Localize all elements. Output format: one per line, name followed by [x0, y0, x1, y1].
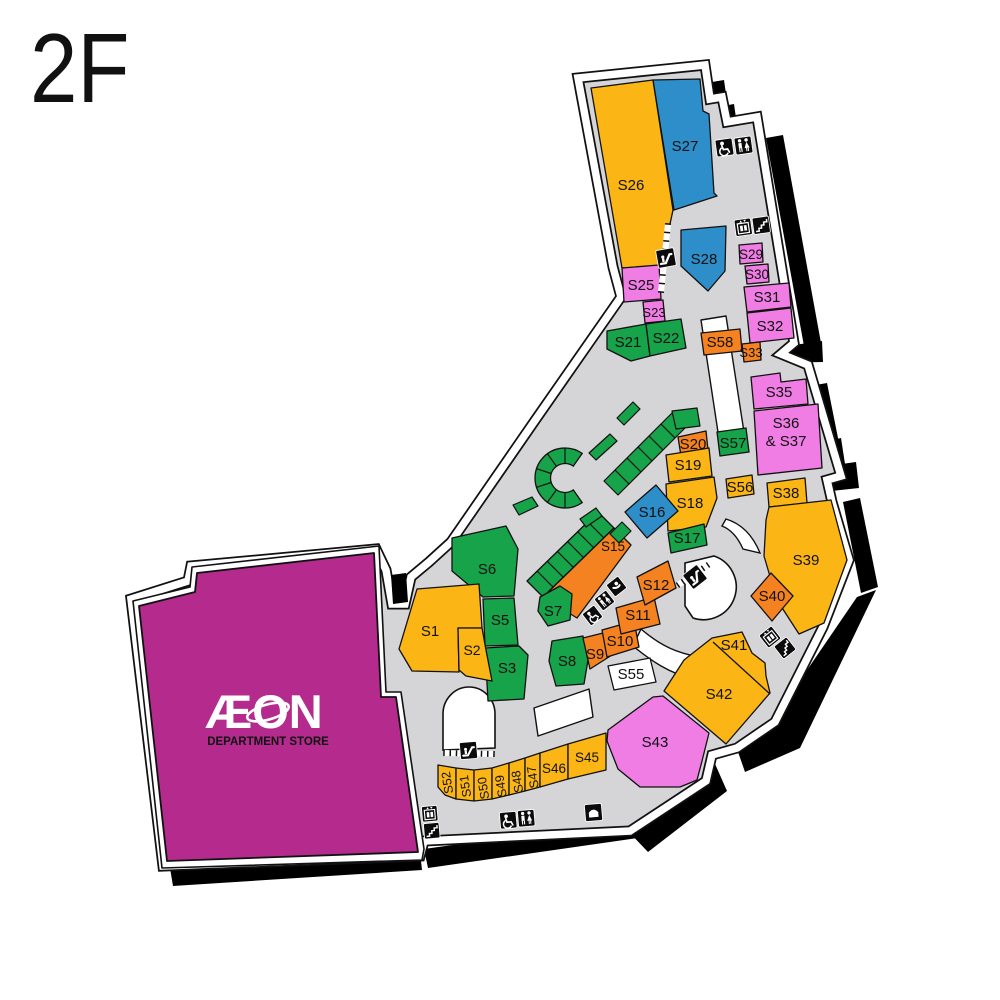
svg-text:S8: S8: [558, 653, 576, 670]
svg-text:S23: S23: [642, 305, 665, 320]
svg-text:S21: S21: [615, 334, 642, 351]
svg-text:S11: S11: [625, 607, 651, 624]
svg-text:S58: S58: [707, 334, 734, 351]
svg-text:S27: S27: [672, 138, 699, 155]
svg-text:S26: S26: [618, 177, 645, 194]
svg-text:S2: S2: [463, 642, 480, 658]
svg-text:S5: S5: [491, 612, 509, 629]
svg-text:DEPARTMENT STORE: DEPARTMENT STORE: [207, 736, 329, 748]
svg-text:2F: 2F: [30, 15, 129, 124]
svg-text:S36: S36: [773, 415, 800, 432]
svg-text:S46: S46: [542, 761, 566, 776]
svg-text:S15: S15: [601, 539, 625, 554]
svg-text:S29: S29: [739, 247, 763, 262]
svg-text:S22: S22: [653, 330, 680, 347]
svg-text:S32: S32: [757, 318, 784, 335]
svg-text:S17: S17: [674, 530, 701, 547]
svg-text:S3: S3: [498, 660, 516, 677]
svg-text:S25: S25: [628, 277, 655, 294]
svg-text:S56: S56: [727, 479, 754, 496]
svg-text:S45: S45: [575, 750, 599, 765]
svg-text:S1: S1: [421, 623, 439, 640]
svg-text:S6: S6: [478, 561, 496, 578]
svg-text:S9: S9: [586, 646, 604, 663]
svg-text:S12: S12: [643, 577, 670, 594]
svg-text:ÆON: ÆON: [205, 685, 323, 738]
svg-text:S19: S19: [675, 457, 702, 474]
svg-text:S55: S55: [618, 666, 645, 683]
svg-text:S10: S10: [607, 633, 634, 650]
svg-text:S18: S18: [677, 495, 704, 512]
svg-text:S57: S57: [720, 435, 747, 452]
svg-text:S16: S16: [639, 504, 666, 521]
svg-text:S30: S30: [745, 267, 769, 282]
svg-text:& S37: & S37: [766, 433, 807, 450]
svg-text:S35: S35: [766, 384, 793, 401]
svg-text:S28: S28: [691, 251, 718, 268]
svg-text:S41: S41: [721, 637, 748, 654]
svg-text:S39: S39: [793, 552, 820, 569]
svg-text:S42: S42: [706, 686, 733, 703]
svg-text:S43: S43: [642, 734, 669, 751]
svg-text:S7: S7: [544, 603, 562, 620]
svg-text:S38: S38: [773, 485, 800, 502]
svg-text:S31: S31: [754, 289, 781, 306]
svg-text:S33: S33: [739, 345, 762, 360]
svg-text:S40: S40: [759, 588, 786, 605]
